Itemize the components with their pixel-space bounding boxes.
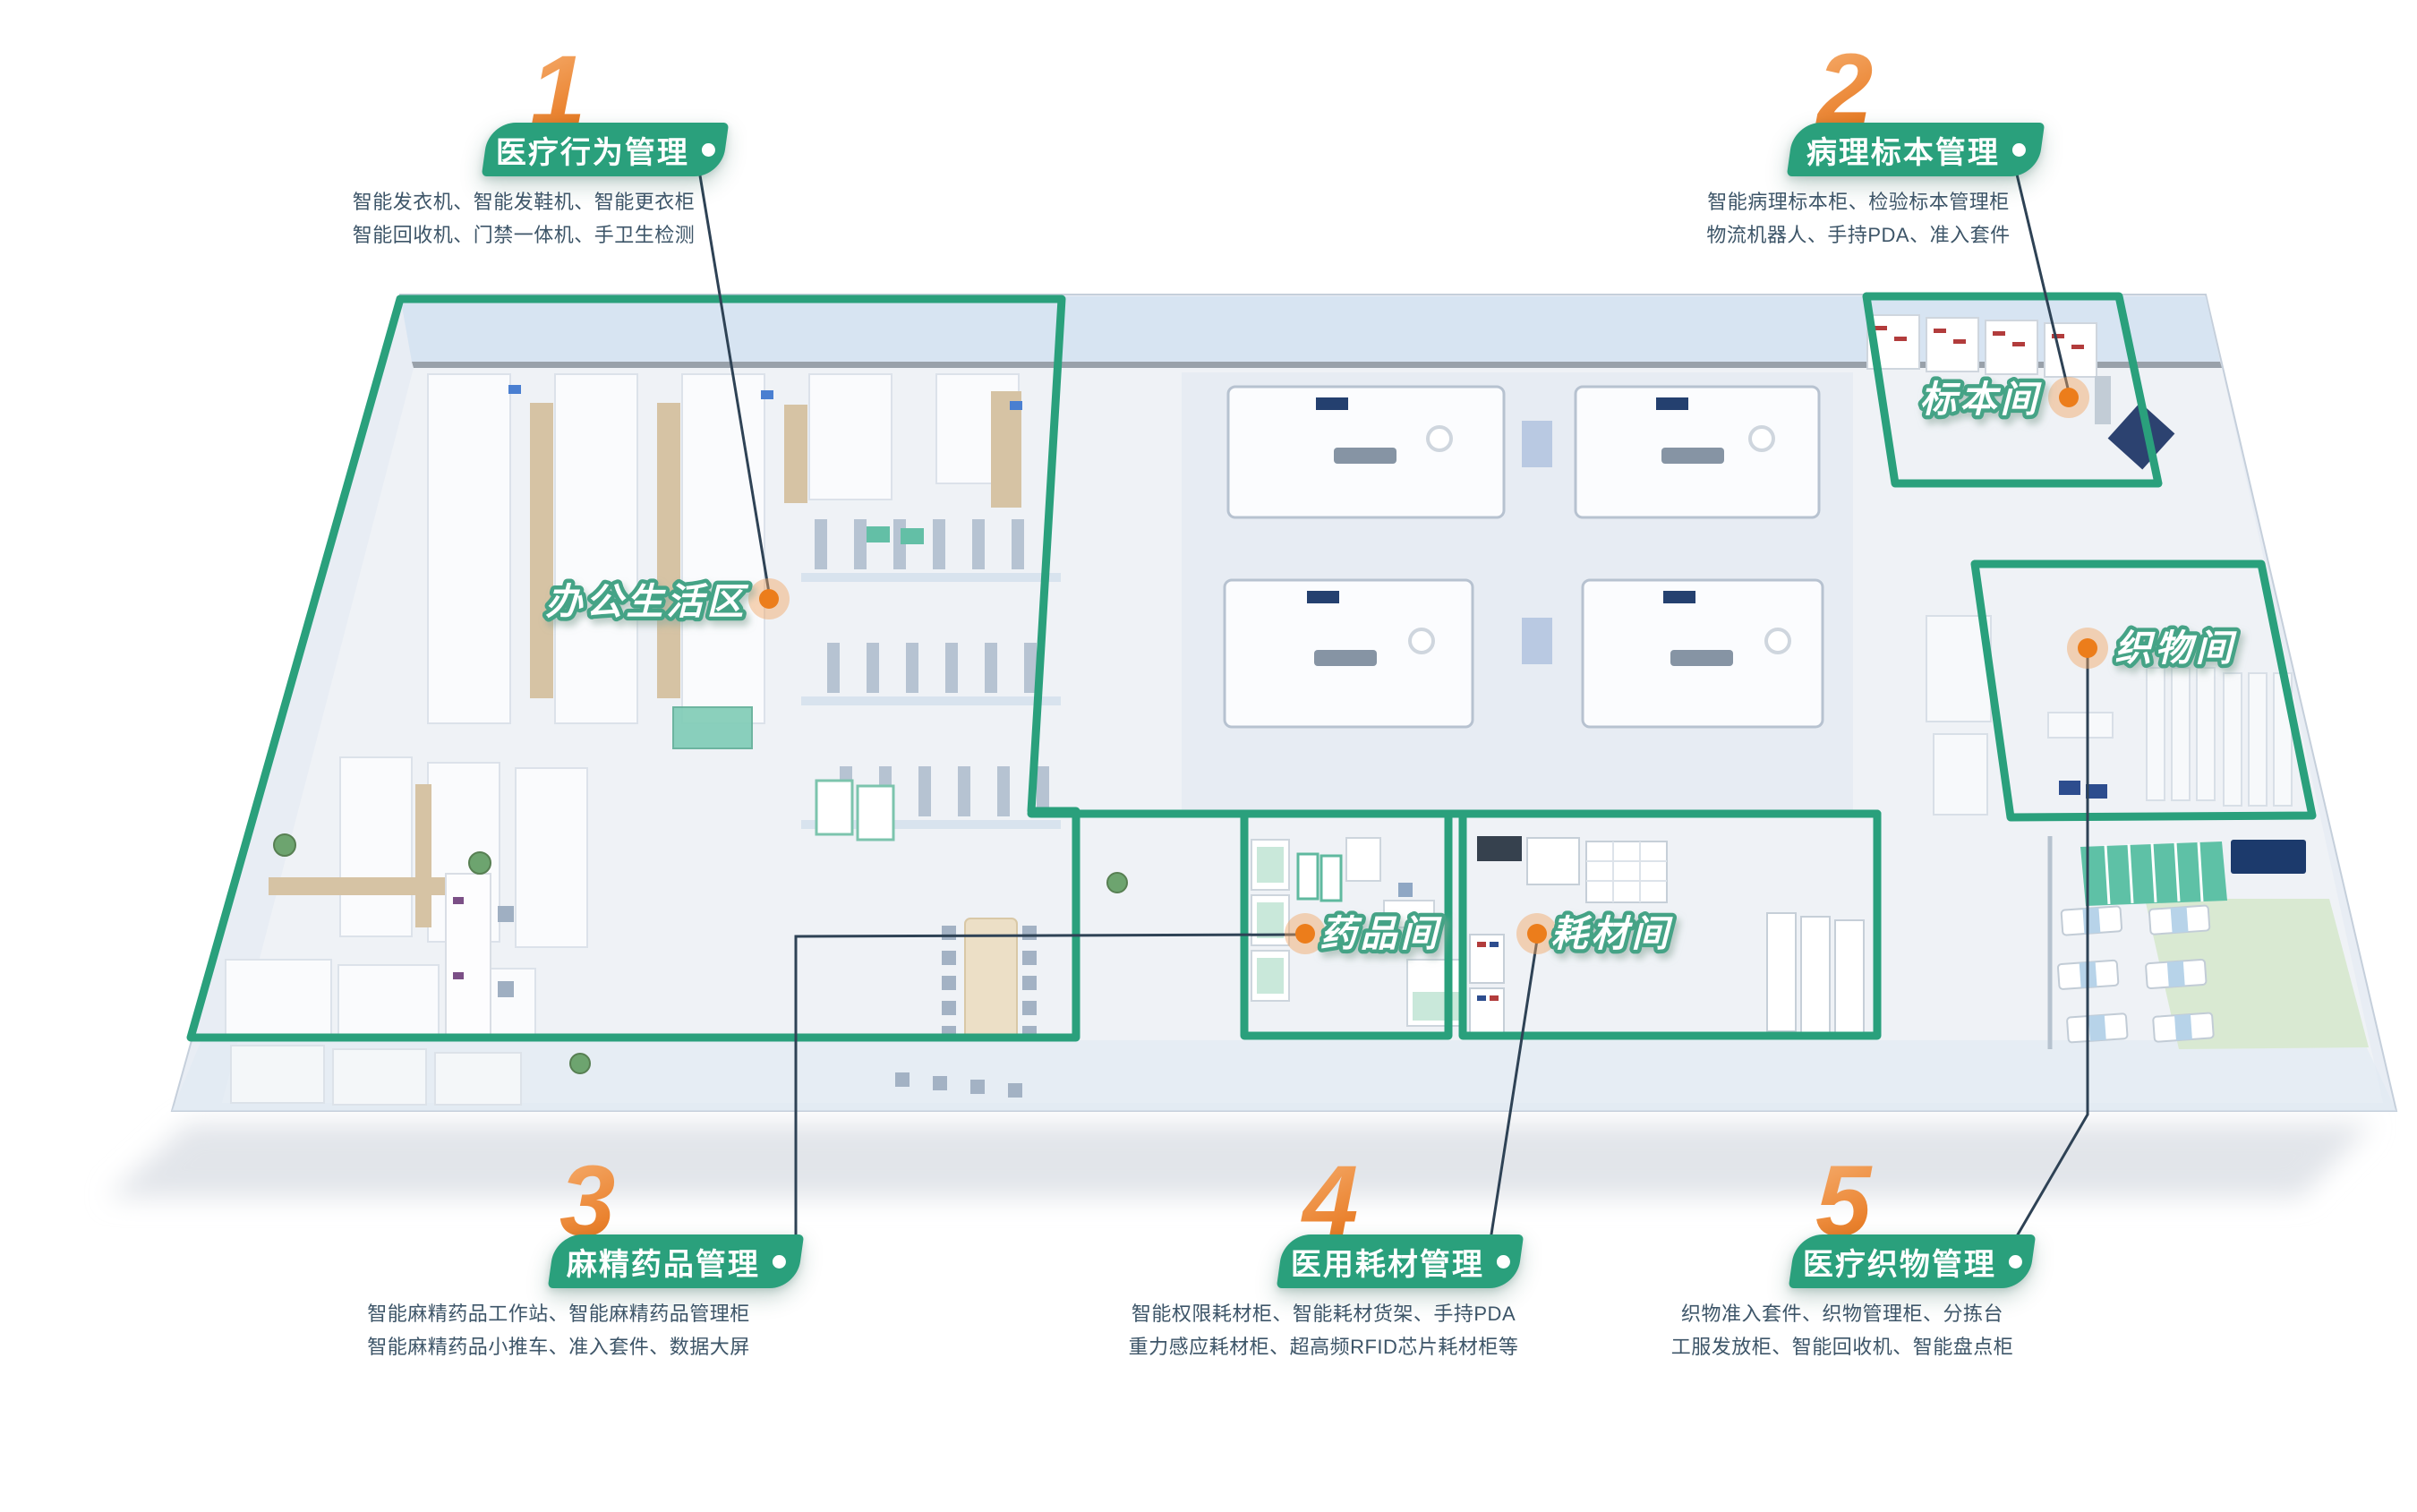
pill-dot-icon: [773, 1255, 786, 1269]
desc-line: 织物准入套件、织物管理柜、分拣台: [1650, 1297, 2035, 1330]
callout-desc-3: 智能麻精药品工作站、智能麻精药品管理柜 智能麻精药品小推车、准入套件、数据大屏: [362, 1297, 756, 1363]
zone-dot-office: [748, 578, 790, 619]
infographic-canvas: 办公生活区 标本间 织物间 药品间 耗材间 1 2 3 4 5 医疗行为管理 病…: [0, 0, 2417, 1512]
callout-desc-2: 智能病理标本柜、检验标本管理柜 物流机器人、手持PDA、准入套件: [1688, 185, 2028, 252]
desc-line: 工服发放柜、智能回收机、智能盘点柜: [1650, 1330, 2035, 1363]
zone-dot-fabric: [2067, 628, 2108, 669]
desc-line: 物流机器人、手持PDA、准入套件: [1688, 218, 2028, 252]
callout-pill-5: 医疗织物管理: [1789, 1234, 2036, 1288]
callout-pill-3: 麻精药品管理: [548, 1234, 804, 1288]
building-shadow: [107, 1123, 2372, 1198]
pill-dot-icon: [2009, 1255, 2022, 1269]
callout-pill-1: 医疗行为管理: [482, 123, 729, 176]
callout-title-4: 医用耗材管理: [1291, 1240, 1484, 1284]
pill-dot-icon: [702, 143, 715, 157]
front-band-cabinets: [231, 1046, 521, 1105]
desc-line: 智能病理标本柜、检验标本管理柜: [1688, 185, 2028, 218]
desc-line: 智能麻精药品工作站、智能麻精药品管理柜: [362, 1297, 756, 1330]
or-block: [1182, 372, 1853, 811]
zone-label-fabric: 织物间: [2115, 628, 2238, 669]
callout-desc-4: 智能权限耗材柜、智能耗材货架、手持PDA 重力感应耗材柜、超高频RFID芯片耗材…: [1120, 1297, 1527, 1363]
desc-line: 智能权限耗材柜、智能耗材货架、手持PDA: [1120, 1297, 1527, 1330]
callout-desc-1: 智能发衣机、智能发鞋机、智能更衣柜 智能回收机、门禁一体机、手卫生检测: [345, 185, 703, 252]
desc-line: 智能回收机、门禁一体机、手卫生检测: [345, 218, 703, 252]
callout-pill-2: 病理标本管理: [1787, 123, 2045, 176]
zone-label-consumables: 耗材间: [1551, 913, 1674, 954]
zone-dot-specimen: [2048, 377, 2089, 418]
callout-title-1: 医疗行为管理: [496, 128, 689, 172]
pill-dot-icon: [1497, 1255, 1510, 1269]
callout-pill-4: 医用耗材管理: [1277, 1234, 1524, 1288]
zone-label-medicine: 药品间: [1320, 913, 1443, 954]
callout-title-3: 麻精药品管理: [567, 1240, 760, 1284]
zone-label-office: 办公生活区: [546, 581, 749, 622]
desc-line: 智能发衣机、智能发鞋机、智能更衣柜: [345, 185, 703, 218]
callout-title-2: 病理标本管理: [1806, 128, 2000, 172]
desc-line: 智能麻精药品小推车、准入套件、数据大屏: [362, 1330, 756, 1363]
pill-dot-icon: [2012, 143, 2026, 157]
zone-label-specimen: 标本间: [1920, 379, 2043, 420]
callout-desc-5: 织物准入套件、织物管理柜、分拣台 工服发放柜、智能回收机、智能盘点柜: [1650, 1297, 2035, 1363]
desc-line: 重力感应耗材柜、超高频RFID芯片耗材柜等: [1120, 1330, 1527, 1363]
callout-title-5: 医疗织物管理: [1803, 1240, 1996, 1284]
